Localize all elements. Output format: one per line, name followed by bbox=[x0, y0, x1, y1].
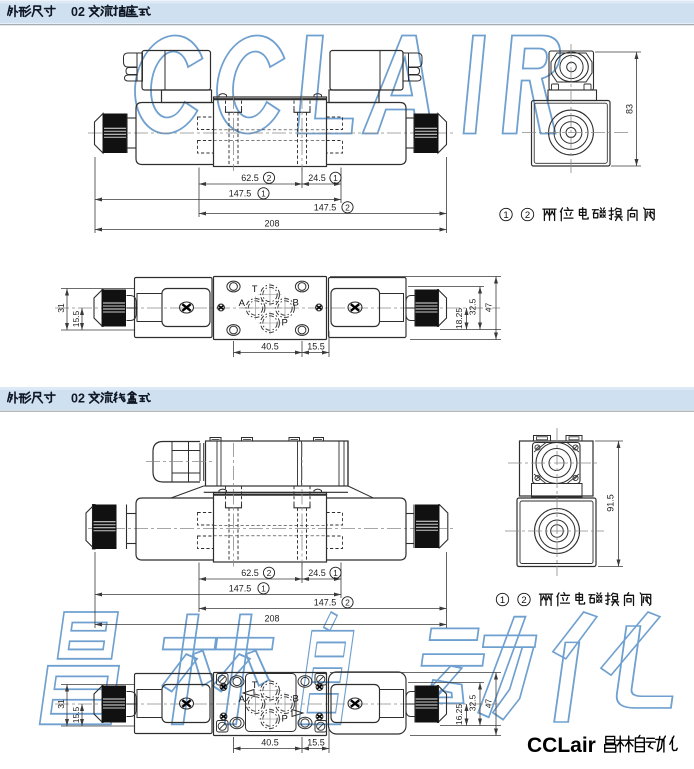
svg-text:2: 2 bbox=[267, 173, 272, 183]
svg-text:T: T bbox=[252, 284, 258, 295]
svg-text:1: 1 bbox=[333, 173, 338, 183]
svg-text:T: T bbox=[252, 680, 258, 691]
svg-text:208: 208 bbox=[264, 614, 279, 624]
svg-text:40.5: 40.5 bbox=[261, 738, 279, 748]
svg-text:24.5: 24.5 bbox=[308, 173, 326, 183]
svg-text:P: P bbox=[282, 318, 288, 329]
svg-text:62.5: 62.5 bbox=[241, 173, 259, 183]
svg-text:15.5: 15.5 bbox=[307, 342, 325, 352]
svg-text:CCLair: CCLair bbox=[527, 734, 596, 757]
svg-text:91.5: 91.5 bbox=[606, 494, 616, 512]
svg-text:2: 2 bbox=[521, 595, 526, 606]
svg-text:1: 1 bbox=[500, 595, 505, 606]
svg-text:40.5: 40.5 bbox=[261, 342, 279, 352]
svg-text:15.5: 15.5 bbox=[307, 738, 325, 748]
svg-text:A: A bbox=[239, 298, 246, 309]
svg-text:1: 1 bbox=[261, 188, 266, 198]
svg-text:147.5: 147.5 bbox=[314, 598, 337, 608]
svg-text:147.5: 147.5 bbox=[314, 203, 337, 213]
svg-text:32.5: 32.5 bbox=[468, 694, 478, 711]
svg-text:15.5: 15.5 bbox=[71, 706, 81, 723]
svg-text:B: B bbox=[293, 298, 299, 309]
svg-text:15.5: 15.5 bbox=[71, 310, 81, 327]
svg-text:31: 31 bbox=[56, 303, 66, 313]
svg-text:P: P bbox=[282, 714, 288, 725]
svg-text:24.5: 24.5 bbox=[308, 568, 326, 578]
svg-text:83: 83 bbox=[625, 104, 635, 114]
svg-text:208: 208 bbox=[264, 219, 279, 229]
svg-text:2: 2 bbox=[345, 597, 350, 607]
svg-text:16.25: 16.25 bbox=[454, 704, 464, 726]
svg-text:02: 02 bbox=[71, 5, 85, 19]
svg-text:02: 02 bbox=[71, 392, 85, 406]
svg-text:32.5: 32.5 bbox=[468, 298, 478, 315]
svg-text:147.5: 147.5 bbox=[229, 189, 252, 199]
svg-text:2: 2 bbox=[525, 210, 530, 221]
svg-text:1: 1 bbox=[333, 568, 338, 578]
svg-text:47: 47 bbox=[484, 699, 494, 709]
svg-text:62.5: 62.5 bbox=[241, 568, 259, 578]
svg-text:18.25: 18.25 bbox=[454, 308, 464, 330]
svg-text:2: 2 bbox=[345, 202, 350, 212]
svg-text:1: 1 bbox=[261, 583, 266, 593]
svg-text:A: A bbox=[239, 694, 246, 705]
svg-text:31: 31 bbox=[56, 699, 66, 709]
svg-text:1: 1 bbox=[503, 210, 508, 221]
svg-text:B: B bbox=[293, 694, 299, 705]
svg-text:2: 2 bbox=[267, 568, 272, 578]
svg-text:147.5: 147.5 bbox=[229, 584, 252, 594]
svg-text:47: 47 bbox=[484, 303, 494, 313]
